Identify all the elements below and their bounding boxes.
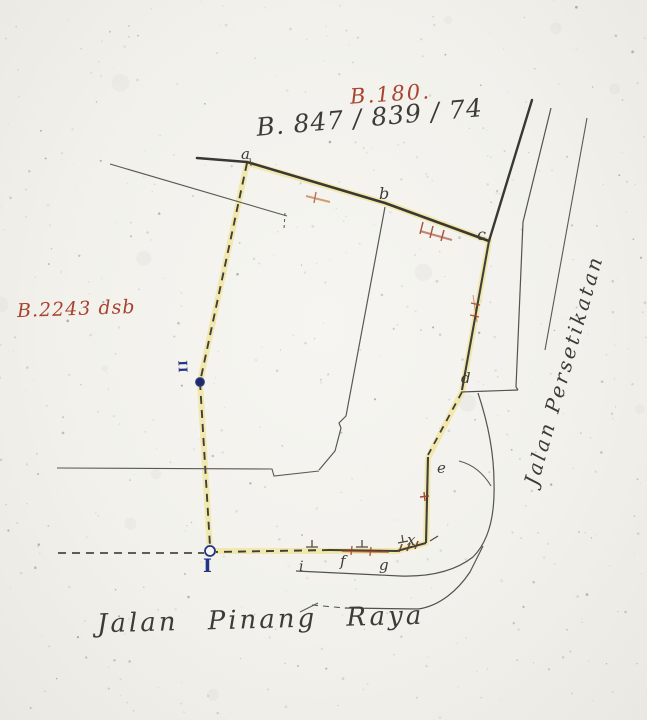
- old-line-inner: [319, 207, 385, 470]
- point-label-i: i: [299, 560, 303, 574]
- old-line-horizontal: [57, 468, 319, 476]
- station-dot-ii: [196, 378, 205, 387]
- curb-arc-small: [459, 461, 491, 486]
- road-junction-horizontal: [461, 390, 518, 392]
- point-label-b: b: [379, 186, 389, 202]
- survey-ticks: [250, 158, 438, 547]
- point-label-x: x: [407, 533, 415, 548]
- point-label-a: a: [241, 147, 250, 162]
- old-line-topleft: [110, 164, 287, 216]
- survey-sketch-canvas: B.180. B. 847 / 839 / 74 B.2243 dsb Jala…: [0, 0, 647, 720]
- point-label-c: c: [477, 227, 486, 243]
- road-east-west-edge: [489, 100, 532, 241]
- boundary-right-upper: [462, 241, 489, 390]
- parcel-highlight: [200, 163, 489, 551]
- hatch-marks-ab: [306, 192, 330, 203]
- point-label-g: g: [379, 558, 389, 573]
- annotation-neighbor-b2243: B.2243 dsb: [17, 298, 136, 321]
- station-label-i: I: [203, 557, 212, 576]
- curb-outer: [345, 546, 483, 609]
- station-label-ii: II: [176, 360, 188, 374]
- point-label-e: e: [437, 461, 446, 476]
- point-label-f: f: [340, 554, 346, 569]
- point-label-d: d: [461, 371, 471, 386]
